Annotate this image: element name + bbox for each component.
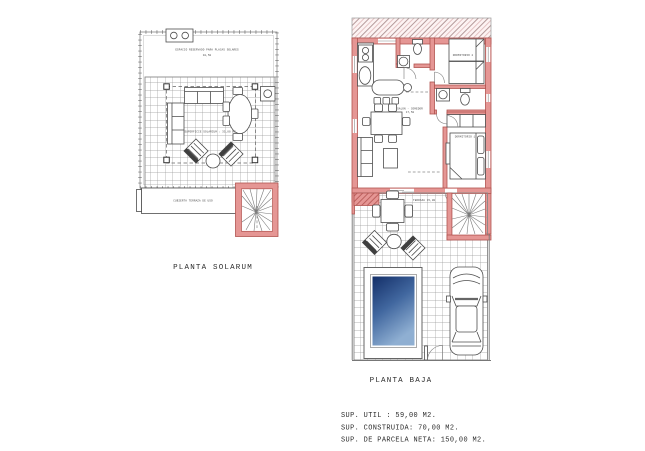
plan-baja: DORMITORIO 2 SALON - COMEDOR 17, [352,18,491,361]
toilet [461,94,470,105]
round-side-table [206,154,220,168]
summary-construida: SUP. CONSTRUIDA: 70,00 M2. [341,425,459,433]
tv-unit [446,143,450,164]
floorplan-sheet: ESPACIO RESERVADO PARA PLACAS SOLARES 10… [0,0,645,451]
dining-table [371,112,402,135]
strip-note: CUBIERTA TERRAZA DE USO [173,200,213,203]
terrace-note: TERRAZA 15,00 [413,199,436,202]
area-summary: SUP. UTIL : 59,00 M2. SUP. CONSTRUIDA: 7… [341,412,486,445]
summary-util: SUP. UTIL : 59,00 M2. [341,412,436,420]
bed [449,62,484,84]
baja-staircase [447,193,491,240]
solar-reserve-note: ESPACIO RESERVADO PARA PLACAS SOLARES [175,49,239,52]
pillow [478,158,485,176]
swimming-pool [364,268,422,359]
party-wall-hatch [352,18,491,38]
bedroom1-label: DORMITORIO 1 [455,136,476,139]
solarium-center-note: SUPERFICIE SOLARIUM : 35,00 M2. [184,131,237,134]
summary-parcela: SUP. DE PARCELA NETA: 150,00 M2. [341,437,486,445]
plan-solarium: ESPACIO RESERVADO PARA PLACAS SOLARES 10… [137,29,279,237]
planter [354,193,379,206]
side-mirror [447,296,451,302]
solarium-sofa-left [168,103,185,144]
appliance [359,67,371,85]
bathroom-1 [398,40,423,80]
car [447,267,488,355]
door-swing [435,72,445,83]
side-mirror [483,296,487,302]
living-area-label: 17,50 [406,111,415,114]
terrace-round-table [387,234,401,248]
door-swing [437,114,448,124]
solarium-title: PLANTA SOLARUM [173,264,253,272]
service-box [261,87,276,102]
bedroom2-label: DORMITORIO 2 [453,54,474,57]
kitchen-table [372,80,404,95]
closet [447,115,486,128]
door-swing [404,68,416,80]
bedroom-2 [435,39,485,84]
floorplan-drawing: ESPACIO RESERVADO PARA PLACAS SOLARES 10… [0,0,645,451]
solarium-staircase [236,183,279,237]
kitchen [358,43,412,104]
baja-title: PLANTA BAJA [370,377,433,385]
pillow [478,136,485,154]
sofa [358,138,373,177]
solar-boiler-box [166,29,193,42]
bed [449,39,484,61]
solar-reserve-area: 10,50 [203,54,212,57]
coffee-table [384,149,398,169]
toilet [414,44,422,55]
living-dining [358,104,451,177]
solarium-sofa-top [185,88,224,104]
